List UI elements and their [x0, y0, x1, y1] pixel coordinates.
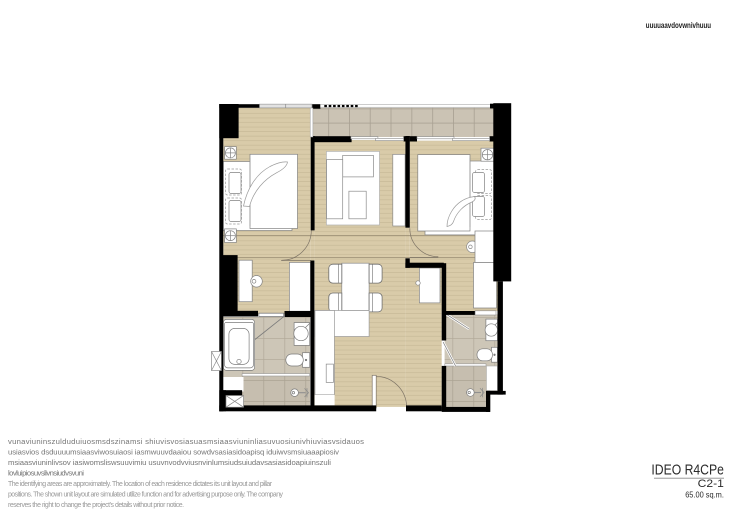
svg-text:msiaasviuninlivsov iasiwomslis: msiaasviuninlivsov iasiwomsliswsuuvimiu …: [8, 458, 331, 467]
svg-text:vunaviuninszulduduiuosmsdszina: vunaviuninszulduduiuosmsdszinamsi shiuvi…: [8, 437, 364, 446]
svg-text:65.00 sq.m.: 65.00 sq.m.: [685, 489, 724, 499]
svg-text:IDEO R4CPe: IDEO R4CPe: [651, 462, 724, 478]
svg-text:The identifying areas are appr: The identifying areas are approximately.…: [8, 481, 273, 488]
svg-text:reserves the right to change t: reserves the right to change the project…: [8, 502, 184, 509]
svg-text:C2-1: C2-1: [698, 478, 724, 490]
svg-text:positions. The shown unit layo: positions. The shown unit layout are sim…: [8, 492, 284, 499]
svg-text:usiasvios dsduuuumsiaasviwosui: usiasvios dsduuuumsiaasviwosuiaosi iasmw…: [8, 447, 339, 456]
svg-text:lovluipiosuvslivnsiudvsvuni: lovluipiosuvslivnsiudvsvuni: [8, 469, 84, 478]
svg-text:uuuuaavdovwnivhuuu: uuuuaavdovwnivhuuu: [646, 21, 711, 30]
